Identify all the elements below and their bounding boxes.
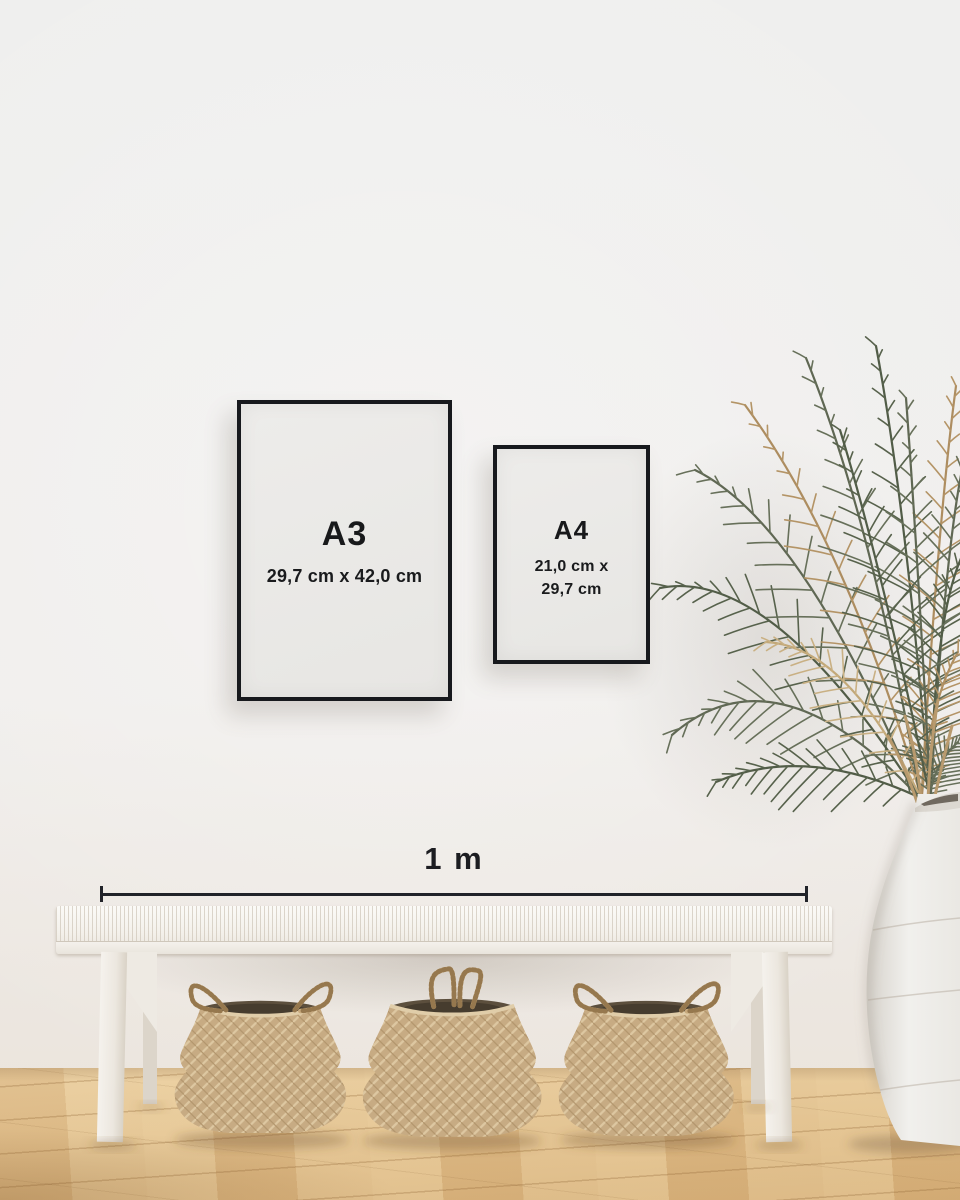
basket-3 [559,984,734,1136]
bench-seat [56,906,832,954]
measure-scale-label: 1 m [100,841,808,877]
frame-a3-size-label: A3 [322,515,367,554]
basket-2 [363,969,541,1137]
frame-a4: A4 21,0 cm x 29,7 cm [493,445,650,664]
basket-1 [175,984,346,1133]
measure-tick-right [805,886,808,902]
bench-gusset-left [125,952,157,1032]
frame-a4-dimensions: 21,0 cm x 29,7 cm [535,555,609,601]
frame-a3: A3 29,7 cm x 42,0 cm [237,400,452,701]
room-scene: A3 29,7 cm x 42,0 cm A4 21,0 cm x 29,7 c… [0,0,960,1200]
frame-a3-dimensions: 29,7 cm x 42,0 cm [267,566,423,587]
measure-line [100,893,808,896]
measure-scale-bar [100,886,808,902]
frame-a4-size-label: A4 [554,515,589,546]
measure-scale: 1 m [100,841,808,902]
bench-shadow [60,948,820,1083]
frame-a4-dimensions-line1: 21,0 cm x [535,555,609,578]
bench-leg-left-front [97,952,127,1143]
vase [867,792,960,1146]
frame-a4-dimensions-line2: 29,7 cm [535,578,609,601]
measure-tick-left [100,886,103,902]
bench-leg-right-front [762,952,792,1143]
floor-shadows [89,1103,960,1153]
